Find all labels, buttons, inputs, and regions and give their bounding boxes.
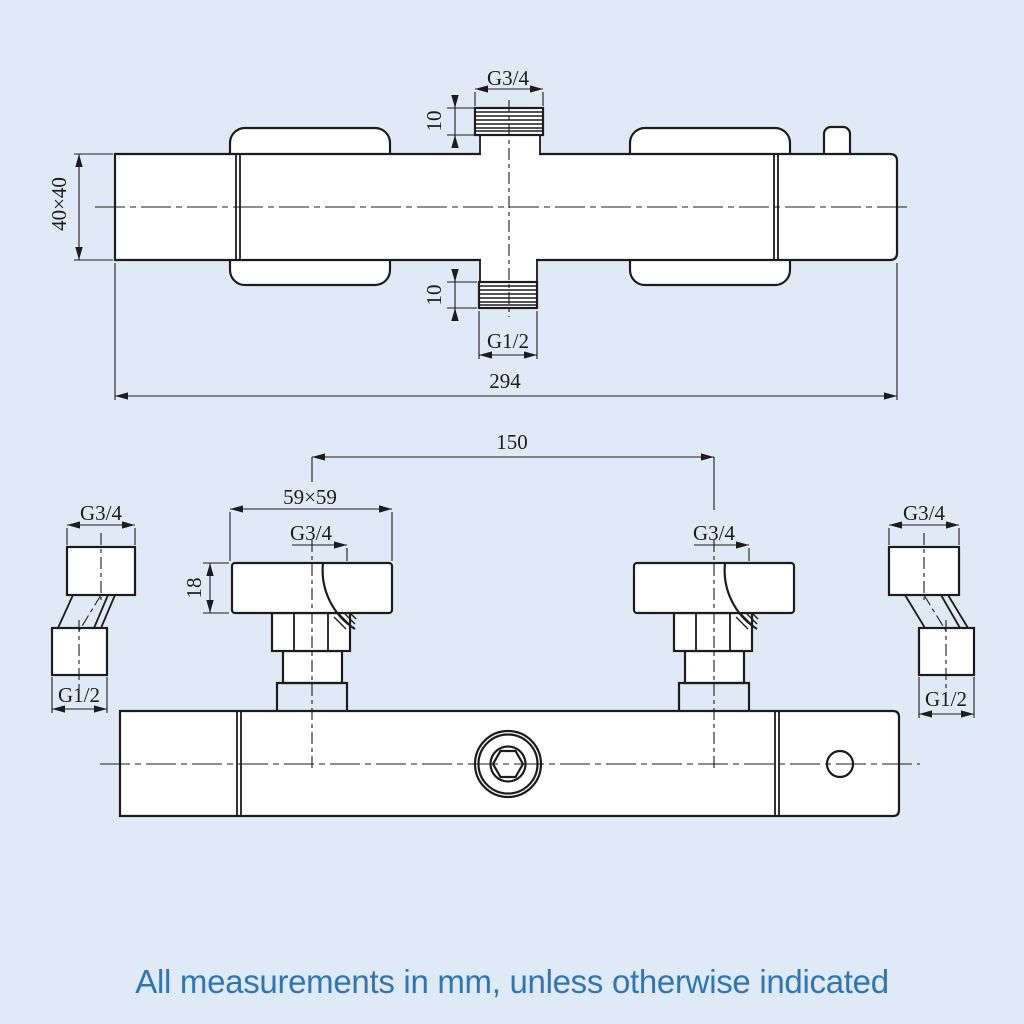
front-view: 150 59×59 G3/4 G3/4 18 [52, 430, 974, 816]
dim-inlet-thread: G1/2 [479, 311, 537, 359]
dim-inlet-length: 10 [422, 270, 477, 320]
dim-plate-height: 18 [182, 563, 229, 613]
bottom-inlet-thread [479, 258, 537, 308]
top-view: G3/4 10 40×40 10 [47, 66, 912, 400]
dim-label-right-elbow-top: G3/4 [903, 501, 946, 525]
dim-label-inlet-thread: G1/2 [487, 329, 529, 353]
dim-label-left-elbow-top: G3/4 [80, 501, 123, 525]
dim-label-plate-height: 18 [182, 578, 206, 599]
technical-drawing: G3/4 10 40×40 10 [0, 0, 1024, 1024]
dim-label-right-valve-thread: G3/4 [693, 521, 736, 545]
measurement-note: All measurements in mm, unless otherwise… [0, 963, 1024, 1001]
left-elbow-fitting [52, 547, 135, 675]
dim-right-elbow-bottom-thread: G1/2 [919, 677, 974, 718]
dim-label-overall-length: 294 [489, 369, 521, 393]
right-valve-nut [674, 613, 752, 651]
dim-label-outlet-thread: G3/4 [487, 66, 530, 90]
dim-label-outlet-length: 10 [422, 111, 446, 132]
dim-right-valve-thread: G3/4 [693, 521, 749, 561]
dim-label-left-valve-thread: G3/4 [290, 521, 333, 545]
dim-left-elbow-bottom-thread: G1/2 [52, 677, 107, 713]
dim-label-body-section: 40×40 [47, 177, 71, 231]
dim-label-right-elbow-bottom: G1/2 [925, 687, 967, 711]
dim-valve-spacing: 150 [312, 430, 714, 510]
dim-label-inlet-length: 10 [422, 285, 446, 306]
dim-label-left-elbow-bottom: G1/2 [58, 683, 100, 707]
dim-left-valve-thread: G3/4 [290, 521, 347, 561]
dim-label-valve-spacing: 150 [496, 430, 528, 454]
left-valve-nut [272, 613, 350, 651]
right-elbow-fitting [889, 547, 974, 675]
dim-label-handle-plate: 59×59 [283, 485, 337, 509]
dim-outlet-length: 10 [422, 96, 474, 146]
